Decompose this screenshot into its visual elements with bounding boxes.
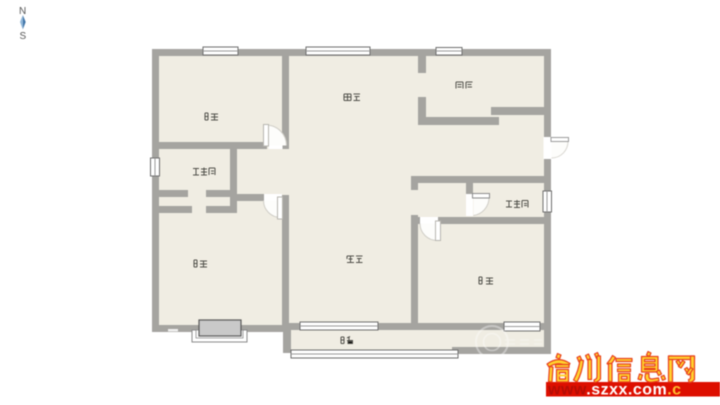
svg-text:S: S [20, 31, 27, 42]
svg-text:www.szxx.com.c: www.szxx.com.c [547, 382, 682, 399]
svg-text:N: N [19, 6, 26, 17]
